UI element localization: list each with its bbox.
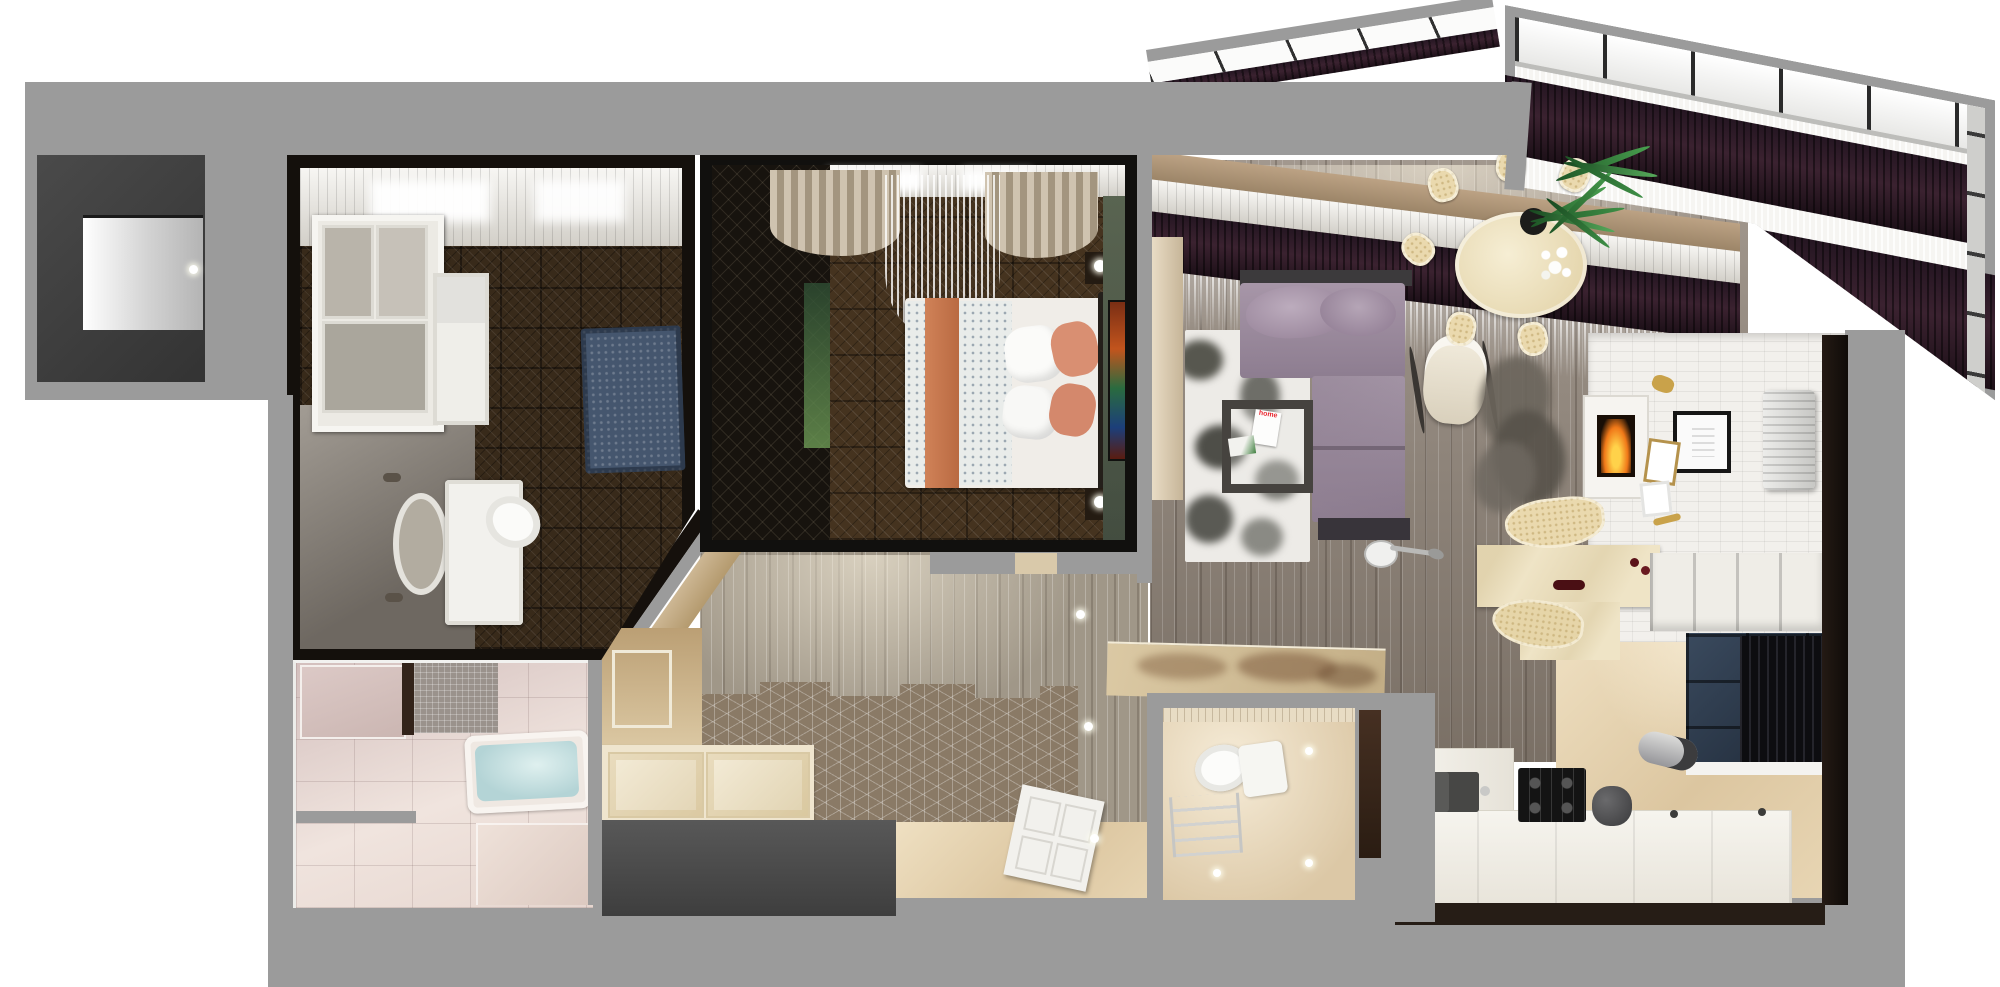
window-pane xyxy=(376,225,428,319)
mosaic-wall-patch xyxy=(414,663,498,733)
door-panel xyxy=(1050,843,1088,883)
magazine-green xyxy=(1228,435,1256,456)
wood-bathroom xyxy=(287,155,695,662)
bath-white-wardrobe xyxy=(433,273,489,425)
bedroom-door-gap xyxy=(1015,553,1057,574)
wardrobe-door xyxy=(608,752,704,818)
wc-toilet-tank xyxy=(1238,740,1289,798)
air-conditioner xyxy=(1763,390,1815,490)
wc-light xyxy=(1305,859,1313,867)
wardrobe-door xyxy=(706,752,810,818)
jacuzzi-bathroom xyxy=(293,660,593,908)
gold-frame xyxy=(1643,438,1681,486)
rug-flower xyxy=(1241,518,1283,556)
wall-tap xyxy=(385,593,403,602)
bath-blue-rug xyxy=(581,325,686,473)
white-frame xyxy=(1639,481,1672,518)
wall-panel-molding xyxy=(612,650,672,728)
bed-orange-runner xyxy=(925,298,959,488)
wc-room xyxy=(1147,693,1435,922)
outer-wall-right xyxy=(1845,330,1905,898)
window-pane xyxy=(322,225,374,319)
tub-water xyxy=(475,740,580,801)
wall-tap xyxy=(383,473,401,482)
outer-wall-left-lower-strip xyxy=(268,395,293,907)
entry-niche xyxy=(83,215,203,330)
entry-door-handle xyxy=(189,265,198,274)
wine-glass-dot xyxy=(1641,566,1650,575)
bedroom xyxy=(700,150,1137,552)
bar-counter xyxy=(1477,545,1660,607)
curtain-left xyxy=(770,170,900,256)
skylight-glow xyxy=(535,180,625,222)
ceiling-light-dot xyxy=(1084,722,1093,731)
door-panel xyxy=(1015,835,1053,875)
kettle xyxy=(1592,786,1632,826)
rug-flower xyxy=(1185,340,1223,380)
wall-spotlight xyxy=(1758,808,1766,816)
black-picture-frame xyxy=(1673,411,1731,473)
oval-mirror xyxy=(393,493,449,595)
stained-glass-art xyxy=(1108,300,1127,461)
window-pane xyxy=(322,321,428,413)
wc-light xyxy=(1213,869,1221,877)
wine-glass-dot xyxy=(1630,558,1639,567)
map-print-blot xyxy=(1317,663,1378,689)
entrance-dark-block xyxy=(602,820,896,916)
hall-beige-wall xyxy=(600,628,702,750)
bath-door-slot xyxy=(402,663,414,735)
coffee-table: home xyxy=(1222,400,1313,493)
kitchen-window-sill xyxy=(1686,762,1822,775)
wall-cubbies xyxy=(1650,553,1822,631)
wardrobe-glass-green xyxy=(804,283,830,448)
bath-step xyxy=(476,823,590,905)
wc-light xyxy=(1305,747,1313,755)
jacuzzi-tub xyxy=(464,730,592,814)
gray-divider-wall xyxy=(1137,150,1152,583)
arc-floor-lamp-base xyxy=(1364,540,1398,568)
palm-plant xyxy=(1508,100,1663,260)
door-panel xyxy=(1023,796,1061,836)
entry-hall xyxy=(37,155,205,382)
beige-divider-panel xyxy=(1152,237,1183,500)
kitchen-curtain-black xyxy=(1740,636,1822,770)
bath-divider-notch xyxy=(296,811,416,823)
ceiling-light-dot xyxy=(1090,834,1099,843)
fire-flame xyxy=(1601,419,1631,473)
wc-door-slot xyxy=(1359,710,1381,858)
hall-wardrobe xyxy=(600,745,814,822)
bath-right-strip xyxy=(588,660,602,905)
curtain-right xyxy=(985,172,1098,258)
towel-ladder xyxy=(1169,793,1243,858)
gas-hob xyxy=(1518,768,1586,822)
ceiling-light-dot xyxy=(1076,610,1085,619)
bath-wall-panel xyxy=(300,665,406,739)
floorplan-render: home xyxy=(0,0,2000,987)
magazine-title: home xyxy=(1258,410,1278,420)
kitchen-south-dark-wall xyxy=(1395,903,1825,925)
wine-bottle xyxy=(1553,580,1585,590)
wc-mosaic-band xyxy=(1163,708,1355,722)
magazine-home: home xyxy=(1251,409,1282,447)
fur-rug xyxy=(1475,355,1575,517)
inner-dark-wall-right xyxy=(1822,335,1848,905)
kitchen-counter-horizontal xyxy=(1398,810,1792,907)
sofa-base xyxy=(1318,518,1410,540)
kitchen-faucet xyxy=(1480,786,1490,796)
wall-spotlight xyxy=(1670,810,1678,818)
map-print-blot xyxy=(1137,652,1228,680)
balcony-end-frame xyxy=(1967,105,1985,438)
sofa-seat-seam xyxy=(1312,446,1405,450)
bath-window-partition xyxy=(312,215,444,432)
rug-flower xyxy=(1185,495,1233,543)
